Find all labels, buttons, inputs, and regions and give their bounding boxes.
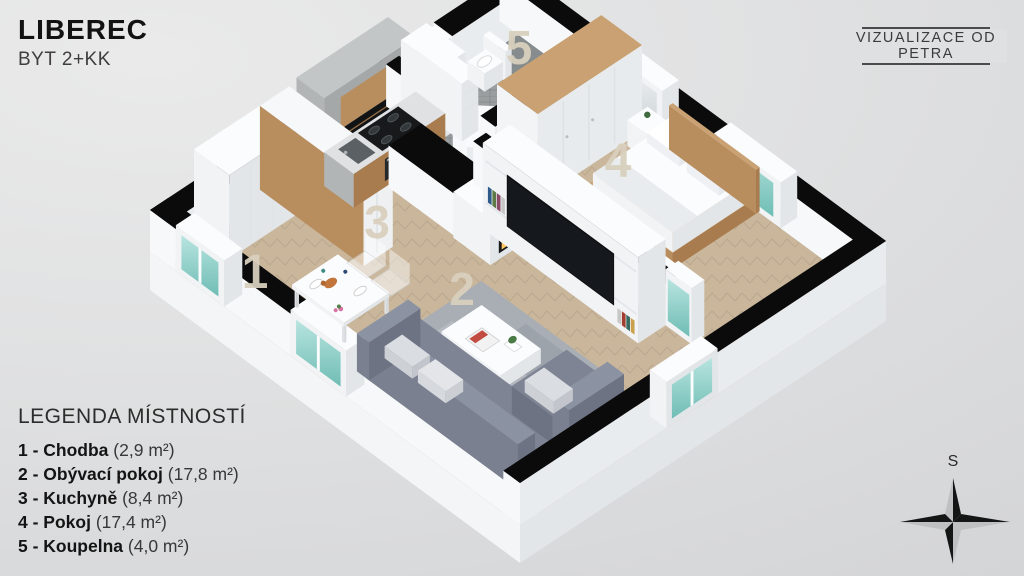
badge-text: VIZUALIZACE OD PETRA bbox=[845, 29, 1007, 63]
legend-item-pokoj: 4 - Pokoj (17,4 m²) bbox=[18, 510, 246, 534]
compass-rose: S bbox=[898, 448, 1016, 570]
compass-north-label: S bbox=[948, 453, 959, 470]
title-block: LIBEREC BYT 2+KK bbox=[18, 14, 148, 71]
visualization-page: { "header": { "title": "LIBEREC", "subti… bbox=[0, 0, 1024, 576]
room-label-kuchyne: 3 bbox=[364, 196, 390, 248]
legend: LEGENDA MÍSTNOSTÍ 1 - Chodba (2,9 m²) 2 … bbox=[18, 405, 246, 558]
legend-item-obyvaci: 2 - Obývací pokoj (17,8 m²) bbox=[18, 462, 246, 486]
watermark-badge: VIZUALIZACE OD PETRA bbox=[845, 27, 1007, 65]
room-label-chodba: 1 bbox=[242, 246, 269, 299]
room-label-obyvaci: 2 bbox=[449, 263, 475, 315]
legend-item-chodba: 1 - Chodba (2,9 m²) bbox=[18, 438, 246, 462]
legend-title: LEGENDA MÍSTNOSTÍ bbox=[18, 405, 246, 429]
legend-item-koupelna: 5 - Koupelna (4,0 m²) bbox=[18, 534, 246, 558]
page-subtitle: BYT 2+KK bbox=[18, 49, 148, 71]
room-label-koupelna: 5 bbox=[506, 22, 533, 75]
room-label-pokoj: 4 bbox=[605, 135, 632, 188]
legend-item-kuchyne: 3 - Kuchyně (8,4 m²) bbox=[18, 486, 246, 510]
page-title: LIBEREC bbox=[18, 14, 148, 46]
compass-star bbox=[900, 478, 1010, 564]
